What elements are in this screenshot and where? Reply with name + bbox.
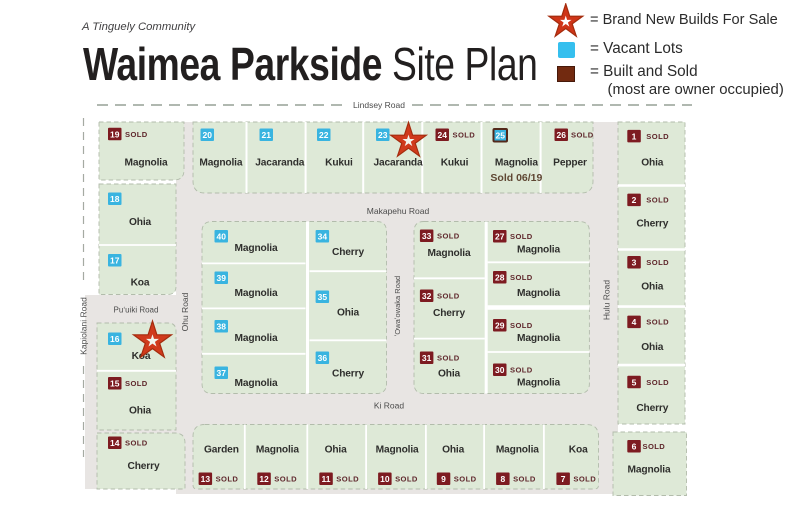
svg-text:Lindsey Road: Lindsey Road xyxy=(353,100,405,110)
svg-text:SOLD: SOLD xyxy=(513,475,536,484)
svg-text:SOLD: SOLD xyxy=(510,366,533,375)
svg-text:Ohia: Ohia xyxy=(325,445,348,456)
svg-text:Magnolia: Magnolia xyxy=(235,288,278,299)
svg-text:SOLD: SOLD xyxy=(125,439,148,448)
svg-text:SOLD: SOLD xyxy=(274,475,297,484)
svg-text:Ohia: Ohia xyxy=(442,445,465,456)
svg-text:Magnolia: Magnolia xyxy=(517,244,560,255)
svg-text:Jacaranda: Jacaranda xyxy=(255,158,305,169)
svg-text:SOLD: SOLD xyxy=(395,475,418,484)
svg-text:Ohia: Ohia xyxy=(641,282,664,293)
svg-text:Magnolia: Magnolia xyxy=(428,248,471,259)
svg-text:24: 24 xyxy=(438,130,448,140)
svg-text:Cherry: Cherry xyxy=(332,368,364,379)
svg-text:7: 7 xyxy=(561,474,566,484)
svg-text:SOLD: SOLD xyxy=(646,132,669,141)
svg-text:Ohia: Ohia xyxy=(129,217,152,228)
svg-text:Ohia: Ohia xyxy=(641,158,664,169)
svg-text:10: 10 xyxy=(380,474,390,484)
svg-text:28: 28 xyxy=(495,273,505,283)
svg-text:Magnolia: Magnolia xyxy=(199,158,242,169)
svg-text:SOLD: SOLD xyxy=(646,318,669,327)
svg-text:Magnolia: Magnolia xyxy=(517,288,560,299)
svg-text:SOLD: SOLD xyxy=(125,130,148,139)
svg-text:Magnolia: Magnolia xyxy=(517,333,560,344)
svg-text:SOLD: SOLD xyxy=(510,321,533,330)
svg-text:Kukui: Kukui xyxy=(325,158,353,169)
svg-text:Magnolia: Magnolia xyxy=(235,333,278,344)
svg-text:Magnolia: Magnolia xyxy=(376,445,419,456)
svg-text:Sold 06/19: Sold 06/19 xyxy=(490,172,542,184)
svg-text:Ki Road: Ki Road xyxy=(374,401,405,411)
svg-text:ʻOwaʻowaka Road: ʻOwaʻowaka Road xyxy=(393,276,402,336)
svg-text:27: 27 xyxy=(495,232,505,242)
svg-text:SOLD: SOLD xyxy=(510,232,533,241)
svg-text:Magnolia: Magnolia xyxy=(235,243,278,254)
svg-text:Cherry: Cherry xyxy=(433,308,465,319)
svg-text:32: 32 xyxy=(422,291,432,301)
svg-text:SOLD: SOLD xyxy=(437,232,460,241)
svg-text:Garden: Garden xyxy=(204,445,239,456)
svg-text:Cherry: Cherry xyxy=(636,403,668,414)
svg-text:Hulu Road: Hulu Road xyxy=(602,280,612,320)
svg-text:SOLD: SOLD xyxy=(510,273,533,282)
svg-text:33: 33 xyxy=(422,231,432,241)
svg-text:9: 9 xyxy=(441,474,446,484)
svg-text:6: 6 xyxy=(632,442,637,452)
svg-text:Ohu Road: Ohu Road xyxy=(180,292,190,331)
svg-text:SOLD: SOLD xyxy=(125,379,148,388)
svg-text:14: 14 xyxy=(110,438,120,448)
svg-text:15: 15 xyxy=(110,379,120,389)
svg-text:Magnolia: Magnolia xyxy=(495,158,538,169)
svg-text:Ohia: Ohia xyxy=(129,406,152,417)
svg-text:13: 13 xyxy=(201,474,211,484)
svg-text:34: 34 xyxy=(318,232,328,242)
svg-text:2: 2 xyxy=(632,195,637,205)
svg-text:4: 4 xyxy=(632,317,637,327)
svg-text:Magnolia: Magnolia xyxy=(628,465,671,476)
svg-text:SOLD: SOLD xyxy=(646,378,669,387)
svg-text:12: 12 xyxy=(259,474,269,484)
svg-text:Ohia: Ohia xyxy=(337,307,360,318)
svg-text:Puʻuiki Road: Puʻuiki Road xyxy=(114,306,159,315)
svg-text:3: 3 xyxy=(632,258,637,268)
svg-text:30: 30 xyxy=(495,365,505,375)
svg-text:35: 35 xyxy=(318,292,328,302)
svg-text:SOLD: SOLD xyxy=(437,292,460,301)
svg-text:SOLD: SOLD xyxy=(336,475,359,484)
svg-text:Pepper: Pepper xyxy=(553,158,587,169)
svg-text:11: 11 xyxy=(322,474,331,484)
svg-text:SOLD: SOLD xyxy=(643,442,666,451)
svg-text:SOLD: SOLD xyxy=(573,475,596,484)
svg-text:18: 18 xyxy=(110,194,120,204)
svg-text:36: 36 xyxy=(318,353,328,363)
svg-text:17: 17 xyxy=(110,256,120,266)
svg-text:SOLD: SOLD xyxy=(437,354,460,363)
svg-text:Ohia: Ohia xyxy=(641,342,664,353)
svg-text:SOLD: SOLD xyxy=(646,258,669,267)
svg-text:Kapiolani Road: Kapiolani Road xyxy=(79,297,89,355)
svg-text:Koa: Koa xyxy=(569,445,588,456)
svg-text:SOLD: SOLD xyxy=(646,196,669,205)
svg-text:SOLD: SOLD xyxy=(571,131,594,140)
svg-text:Koa: Koa xyxy=(131,278,150,289)
svg-text:23: 23 xyxy=(378,130,388,140)
svg-text:39: 39 xyxy=(217,273,227,283)
svg-text:20: 20 xyxy=(203,130,213,140)
svg-text:Magnolia: Magnolia xyxy=(517,377,560,388)
svg-text:29: 29 xyxy=(495,321,505,331)
svg-text:Cherry: Cherry xyxy=(128,461,160,472)
svg-text:Magnolia: Magnolia xyxy=(125,158,168,169)
svg-text:8: 8 xyxy=(500,474,505,484)
svg-text:SOLD: SOLD xyxy=(216,475,239,484)
svg-text:26: 26 xyxy=(557,130,567,140)
svg-text:Makapehu Road: Makapehu Road xyxy=(367,206,430,216)
svg-text:1: 1 xyxy=(632,132,637,142)
svg-text:SOLD: SOLD xyxy=(454,475,477,484)
svg-text:21: 21 xyxy=(262,130,272,140)
svg-text:37: 37 xyxy=(217,368,227,378)
svg-text:38: 38 xyxy=(217,322,227,332)
svg-text:31: 31 xyxy=(422,353,432,363)
svg-text:19: 19 xyxy=(110,129,120,139)
svg-text:Jacaranda: Jacaranda xyxy=(373,158,423,169)
svg-text:25: 25 xyxy=(496,131,506,141)
svg-text:5: 5 xyxy=(632,377,637,387)
svg-text:SOLD: SOLD xyxy=(453,131,476,140)
svg-text:Cherry: Cherry xyxy=(332,247,364,258)
svg-text:22: 22 xyxy=(319,130,329,140)
svg-text:Magnolia: Magnolia xyxy=(256,445,299,456)
svg-text:40: 40 xyxy=(217,232,227,242)
svg-text:Ohia: Ohia xyxy=(438,368,461,379)
svg-text:Cherry: Cherry xyxy=(636,219,668,230)
svg-text:Magnolia: Magnolia xyxy=(235,378,278,389)
svg-text:16: 16 xyxy=(110,334,120,344)
svg-text:Magnolia: Magnolia xyxy=(496,445,539,456)
svg-text:Kukui: Kukui xyxy=(441,158,469,169)
